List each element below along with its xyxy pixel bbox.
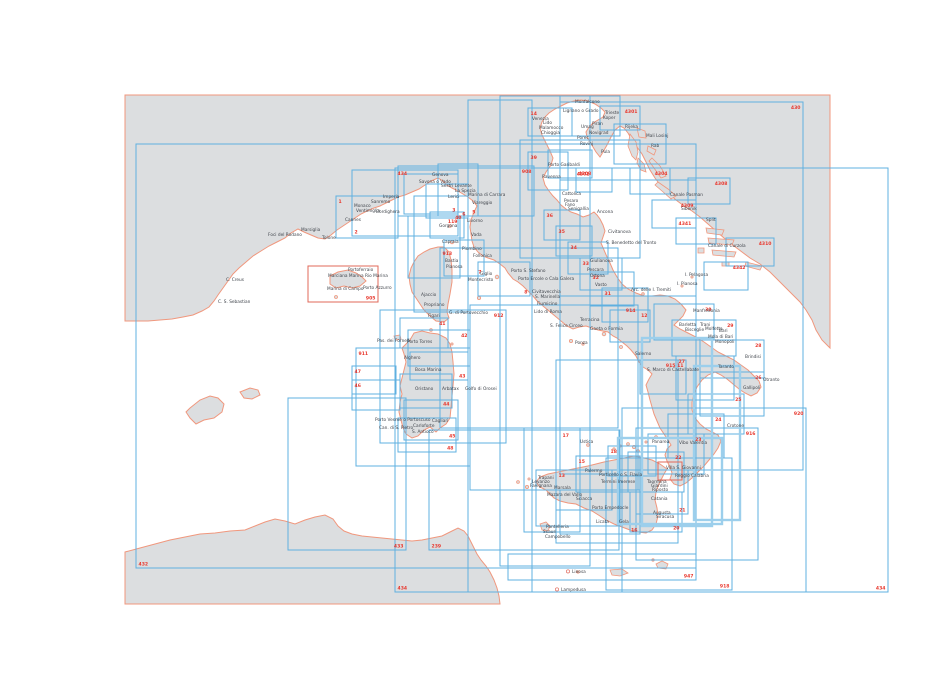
place-label: Brindisi bbox=[745, 354, 761, 360]
land-levanzo bbox=[528, 478, 530, 480]
chart-number-4342: 4342 bbox=[733, 265, 746, 271]
place-label: Cagliari bbox=[432, 418, 448, 424]
land-vis bbox=[698, 248, 704, 253]
place-label: Split bbox=[706, 217, 716, 223]
chart-number-434: 434 bbox=[876, 586, 886, 592]
chart-number-35: 35 bbox=[559, 229, 565, 235]
place-label: C. Creus bbox=[226, 277, 245, 283]
chart-number-13: 13 bbox=[559, 473, 565, 479]
chart-number-430: 430 bbox=[791, 105, 801, 111]
place-label: Porto Vesme o Portoscuso bbox=[375, 417, 431, 423]
chart-number-44: 44 bbox=[443, 402, 449, 408]
place-label: Follonica bbox=[473, 253, 492, 259]
land-tremiti bbox=[642, 293, 645, 296]
chart-number-18: 18 bbox=[611, 449, 617, 455]
chart-number-912: 912 bbox=[494, 313, 504, 319]
chart-number-4304: 4304 bbox=[655, 171, 668, 177]
chart-number-12: 12 bbox=[641, 313, 647, 319]
place-label: Portoferraio bbox=[348, 267, 374, 273]
place-label: Rijeka bbox=[625, 124, 638, 130]
place-label: Umag bbox=[581, 124, 594, 130]
chart-number-918: 918 bbox=[720, 584, 730, 590]
place-label: Mali Losinj bbox=[646, 133, 668, 139]
chart-number-28: 28 bbox=[755, 343, 761, 349]
place-label: Gorgona bbox=[439, 223, 458, 229]
place-label: Vasto bbox=[595, 282, 607, 288]
place-label: Marina di Carrara bbox=[468, 192, 506, 198]
map-canvas: 4324344344344309119129139149159169189209… bbox=[0, 0, 950, 700]
place-label: Porto S. Stefano bbox=[511, 268, 546, 274]
place-label: Porto Empedocle bbox=[592, 505, 629, 511]
chart-number-4308: 4308 bbox=[715, 181, 728, 187]
place-label: Golfo di Orosei bbox=[465, 386, 497, 392]
chart-number-45: 45 bbox=[449, 434, 455, 440]
place-label: Ortona bbox=[590, 273, 605, 279]
place-label: Bisceglie bbox=[685, 327, 705, 333]
land-giglio bbox=[495, 275, 499, 279]
place-label: Pescara bbox=[587, 267, 604, 273]
chart-number-43: 43 bbox=[459, 374, 465, 380]
place-label: Licata bbox=[596, 519, 609, 525]
chart-number-239: 239 bbox=[432, 544, 442, 550]
chart-number-41: 41 bbox=[439, 321, 445, 327]
chart-number-4301: 4301 bbox=[625, 109, 638, 115]
place-label: Otranto bbox=[763, 377, 780, 383]
place-label: Campobello bbox=[545, 534, 571, 540]
place-label: Bastia bbox=[445, 258, 459, 264]
place-label: Canale Pasman bbox=[670, 192, 703, 198]
chart-number-4303: 4303 bbox=[579, 171, 592, 177]
place-label: S. Antioco bbox=[412, 429, 434, 435]
place-label: Porto Azzurro bbox=[363, 285, 392, 291]
place-label: Crotone bbox=[727, 423, 744, 429]
place-label: Catania bbox=[651, 496, 668, 502]
chart-number-16: 16 bbox=[631, 528, 637, 534]
chart-number-432: 432 bbox=[139, 562, 149, 568]
place-label: Chioggia bbox=[541, 130, 560, 136]
place-label: Bari bbox=[719, 328, 728, 334]
place-label: Porto Ercole o Cala Galera bbox=[518, 276, 574, 282]
place-label: Canale di Curzola bbox=[708, 243, 746, 249]
chart-number-42: 42 bbox=[461, 333, 467, 339]
place-label: Pula bbox=[601, 149, 610, 155]
place-label: Vada bbox=[471, 232, 482, 238]
place-label: G. di Portovecchio bbox=[449, 310, 488, 316]
place-label: Montecristo bbox=[468, 277, 494, 283]
place-label: Taranto bbox=[717, 364, 734, 370]
place-label: Can. di S. Pietro bbox=[379, 425, 414, 431]
place-label: Gela bbox=[619, 519, 629, 525]
land-favignana bbox=[525, 485, 528, 488]
place-label: S. Marinella bbox=[535, 294, 561, 300]
place-label: Salerno bbox=[635, 351, 652, 357]
chart-number-905: 905 bbox=[366, 296, 376, 302]
place-label: Tolone bbox=[321, 235, 336, 241]
chart-number-2: 2 bbox=[355, 230, 358, 236]
chart-number-48: 48 bbox=[447, 446, 453, 452]
land-montecristo bbox=[477, 296, 480, 299]
land-ischia bbox=[602, 332, 606, 336]
land-salina bbox=[627, 443, 630, 446]
chart-number-36: 36 bbox=[547, 213, 553, 219]
place-label: Pianosa bbox=[446, 264, 463, 270]
place-label: Bosa Marina bbox=[415, 367, 442, 373]
place-label: Pas. dei Fornelli bbox=[377, 338, 411, 344]
chart-number-8: 8 bbox=[524, 290, 527, 296]
place-label: Manfredonia bbox=[693, 308, 720, 314]
place-label: Civitanova bbox=[608, 229, 631, 235]
place-label: Giulianova bbox=[590, 258, 613, 264]
place-label: Cattolica bbox=[562, 191, 581, 197]
nautical-chart-index-map: { "map": { "title": "Indice delle carte … bbox=[0, 0, 950, 700]
place-label: Bordighera bbox=[376, 209, 400, 215]
place-label: Lido di Roma bbox=[534, 309, 562, 315]
place-label: Koper bbox=[603, 115, 616, 121]
place-label: Gaeta o Formia bbox=[590, 326, 623, 332]
place-label: S. Benedetto del Tronto bbox=[606, 240, 657, 246]
place-label: Terracina bbox=[579, 317, 600, 323]
chart-number-25: 25 bbox=[735, 397, 741, 403]
place-label: Sciacca bbox=[576, 496, 593, 502]
place-label: Reggio Calabria bbox=[675, 473, 709, 479]
place-label: Lampedusa bbox=[561, 587, 586, 593]
chart-number-911: 911 bbox=[359, 351, 369, 357]
land-ponza bbox=[569, 339, 572, 342]
place-label: S. Felice Circeo bbox=[550, 323, 583, 329]
place-label: Foci del Rodano bbox=[268, 232, 302, 238]
place-label: Marsiglia bbox=[301, 227, 321, 233]
place-label: Oristano bbox=[415, 386, 434, 392]
place-label: Marina di Campo bbox=[327, 286, 364, 292]
place-label: Riposto bbox=[652, 487, 668, 493]
place-label: I. Pianosa bbox=[677, 281, 698, 287]
place-label: Favignana bbox=[530, 483, 552, 489]
place-label: Alghero bbox=[404, 355, 421, 361]
land-capri bbox=[620, 346, 623, 349]
place-label: Ponza bbox=[575, 340, 588, 346]
place-label: Lerici bbox=[448, 194, 459, 200]
place-label: Imperia bbox=[383, 194, 400, 200]
chart-number-39: 39 bbox=[531, 155, 537, 161]
chart-number-947: 947 bbox=[684, 574, 694, 580]
chart-number-24: 24 bbox=[715, 417, 721, 423]
place-label: Senigallia bbox=[568, 206, 589, 212]
place-label: Rab bbox=[651, 143, 660, 149]
chart-number-20: 20 bbox=[673, 526, 679, 532]
place-label: Monopoli bbox=[715, 339, 734, 345]
chart-number-4341: 4341 bbox=[679, 221, 692, 227]
chart-number-4310: 4310 bbox=[759, 241, 772, 247]
chart-number-434: 434 bbox=[398, 171, 408, 177]
chart-number-40: 40 bbox=[455, 215, 461, 221]
chart-number-33: 33 bbox=[583, 261, 589, 267]
chart-number-434: 434 bbox=[398, 586, 408, 592]
chart-number-46: 46 bbox=[355, 383, 361, 389]
place-label: Marciana Marina bbox=[328, 273, 364, 279]
chart-number-5: 5 bbox=[472, 210, 475, 216]
place-label: Arbatax bbox=[442, 386, 459, 392]
place-label: I. Pelagosa bbox=[685, 272, 709, 278]
chart-number-916: 916 bbox=[746, 431, 756, 437]
place-label: Villa S. Giovanni bbox=[666, 465, 701, 471]
place-label: Vibo Valentia bbox=[679, 440, 707, 446]
place-label: Marsala bbox=[554, 485, 571, 491]
place-label: Sibenik bbox=[681, 206, 697, 212]
place-label: Livorno bbox=[467, 218, 483, 224]
chart-number-1: 1 bbox=[339, 199, 342, 205]
chart-number-34: 34 bbox=[571, 245, 577, 251]
place-label: S. Marco di Castellabate bbox=[647, 367, 699, 373]
place-label: Rovinj bbox=[580, 141, 593, 147]
chart-number-21: 21 bbox=[679, 508, 685, 514]
place-label: Piombino bbox=[462, 246, 482, 252]
place-label: Siracusa bbox=[656, 514, 675, 520]
place-label: Figari bbox=[428, 313, 440, 319]
chart-number-6: 6 bbox=[462, 212, 465, 218]
place-label: Linosa bbox=[572, 569, 586, 575]
place-label: Gallipoli bbox=[743, 385, 760, 391]
place-label: Ajaccio bbox=[421, 292, 437, 298]
land-marettimo bbox=[517, 481, 520, 484]
place-label: Cannes bbox=[345, 217, 362, 223]
place-label: Viareggio bbox=[472, 200, 493, 206]
place-label: Porec bbox=[577, 135, 589, 141]
chart-number-433: 433 bbox=[394, 544, 404, 550]
chart-number-17: 17 bbox=[563, 433, 569, 439]
chart-number-3: 3 bbox=[452, 208, 455, 214]
place-label: Termini Imerese bbox=[600, 479, 636, 485]
place-label: Porto Garibaldi bbox=[548, 162, 580, 168]
place-label: Ravenna bbox=[542, 174, 561, 180]
place-label: Rio Marina bbox=[365, 273, 388, 279]
land-pianosa bbox=[335, 296, 338, 299]
place-label: Genova bbox=[432, 172, 449, 178]
chart-number-26: 26 bbox=[755, 375, 761, 381]
chart-number-22: 22 bbox=[675, 455, 681, 461]
place-label: Giglio bbox=[480, 271, 493, 277]
chart-number-914: 914 bbox=[626, 308, 636, 314]
place-label: C. S. Sebastian bbox=[218, 299, 251, 305]
place-label: Ustica bbox=[580, 439, 594, 445]
chart-number-15: 15 bbox=[579, 459, 585, 465]
place-label: Lignano o Grado bbox=[563, 108, 599, 114]
chart-number-913: 913 bbox=[443, 251, 453, 257]
place-label: Panarea bbox=[652, 439, 670, 445]
place-label: Capraia bbox=[442, 239, 459, 245]
place-label: Fiumicino bbox=[537, 301, 558, 307]
chart-number-920: 920 bbox=[794, 411, 804, 417]
land-tavolara bbox=[451, 343, 453, 345]
place-label: Monfalcone bbox=[575, 99, 600, 105]
place-label: Novigrad bbox=[589, 130, 609, 136]
chart-number-47: 47 bbox=[355, 369, 361, 375]
chart-number-908: 908 bbox=[522, 169, 532, 175]
place-label: Porticello o S. Flavia bbox=[599, 472, 643, 478]
land-panarea bbox=[645, 441, 647, 443]
place-label: Ancona bbox=[597, 209, 613, 215]
place-label: Arc. delle I. Tremiti bbox=[631, 287, 671, 293]
place-label: Porto Torres bbox=[407, 339, 433, 345]
chart-number-31: 31 bbox=[605, 291, 611, 297]
place-label: Propriano bbox=[424, 302, 445, 308]
chart-number-29: 29 bbox=[727, 323, 733, 329]
